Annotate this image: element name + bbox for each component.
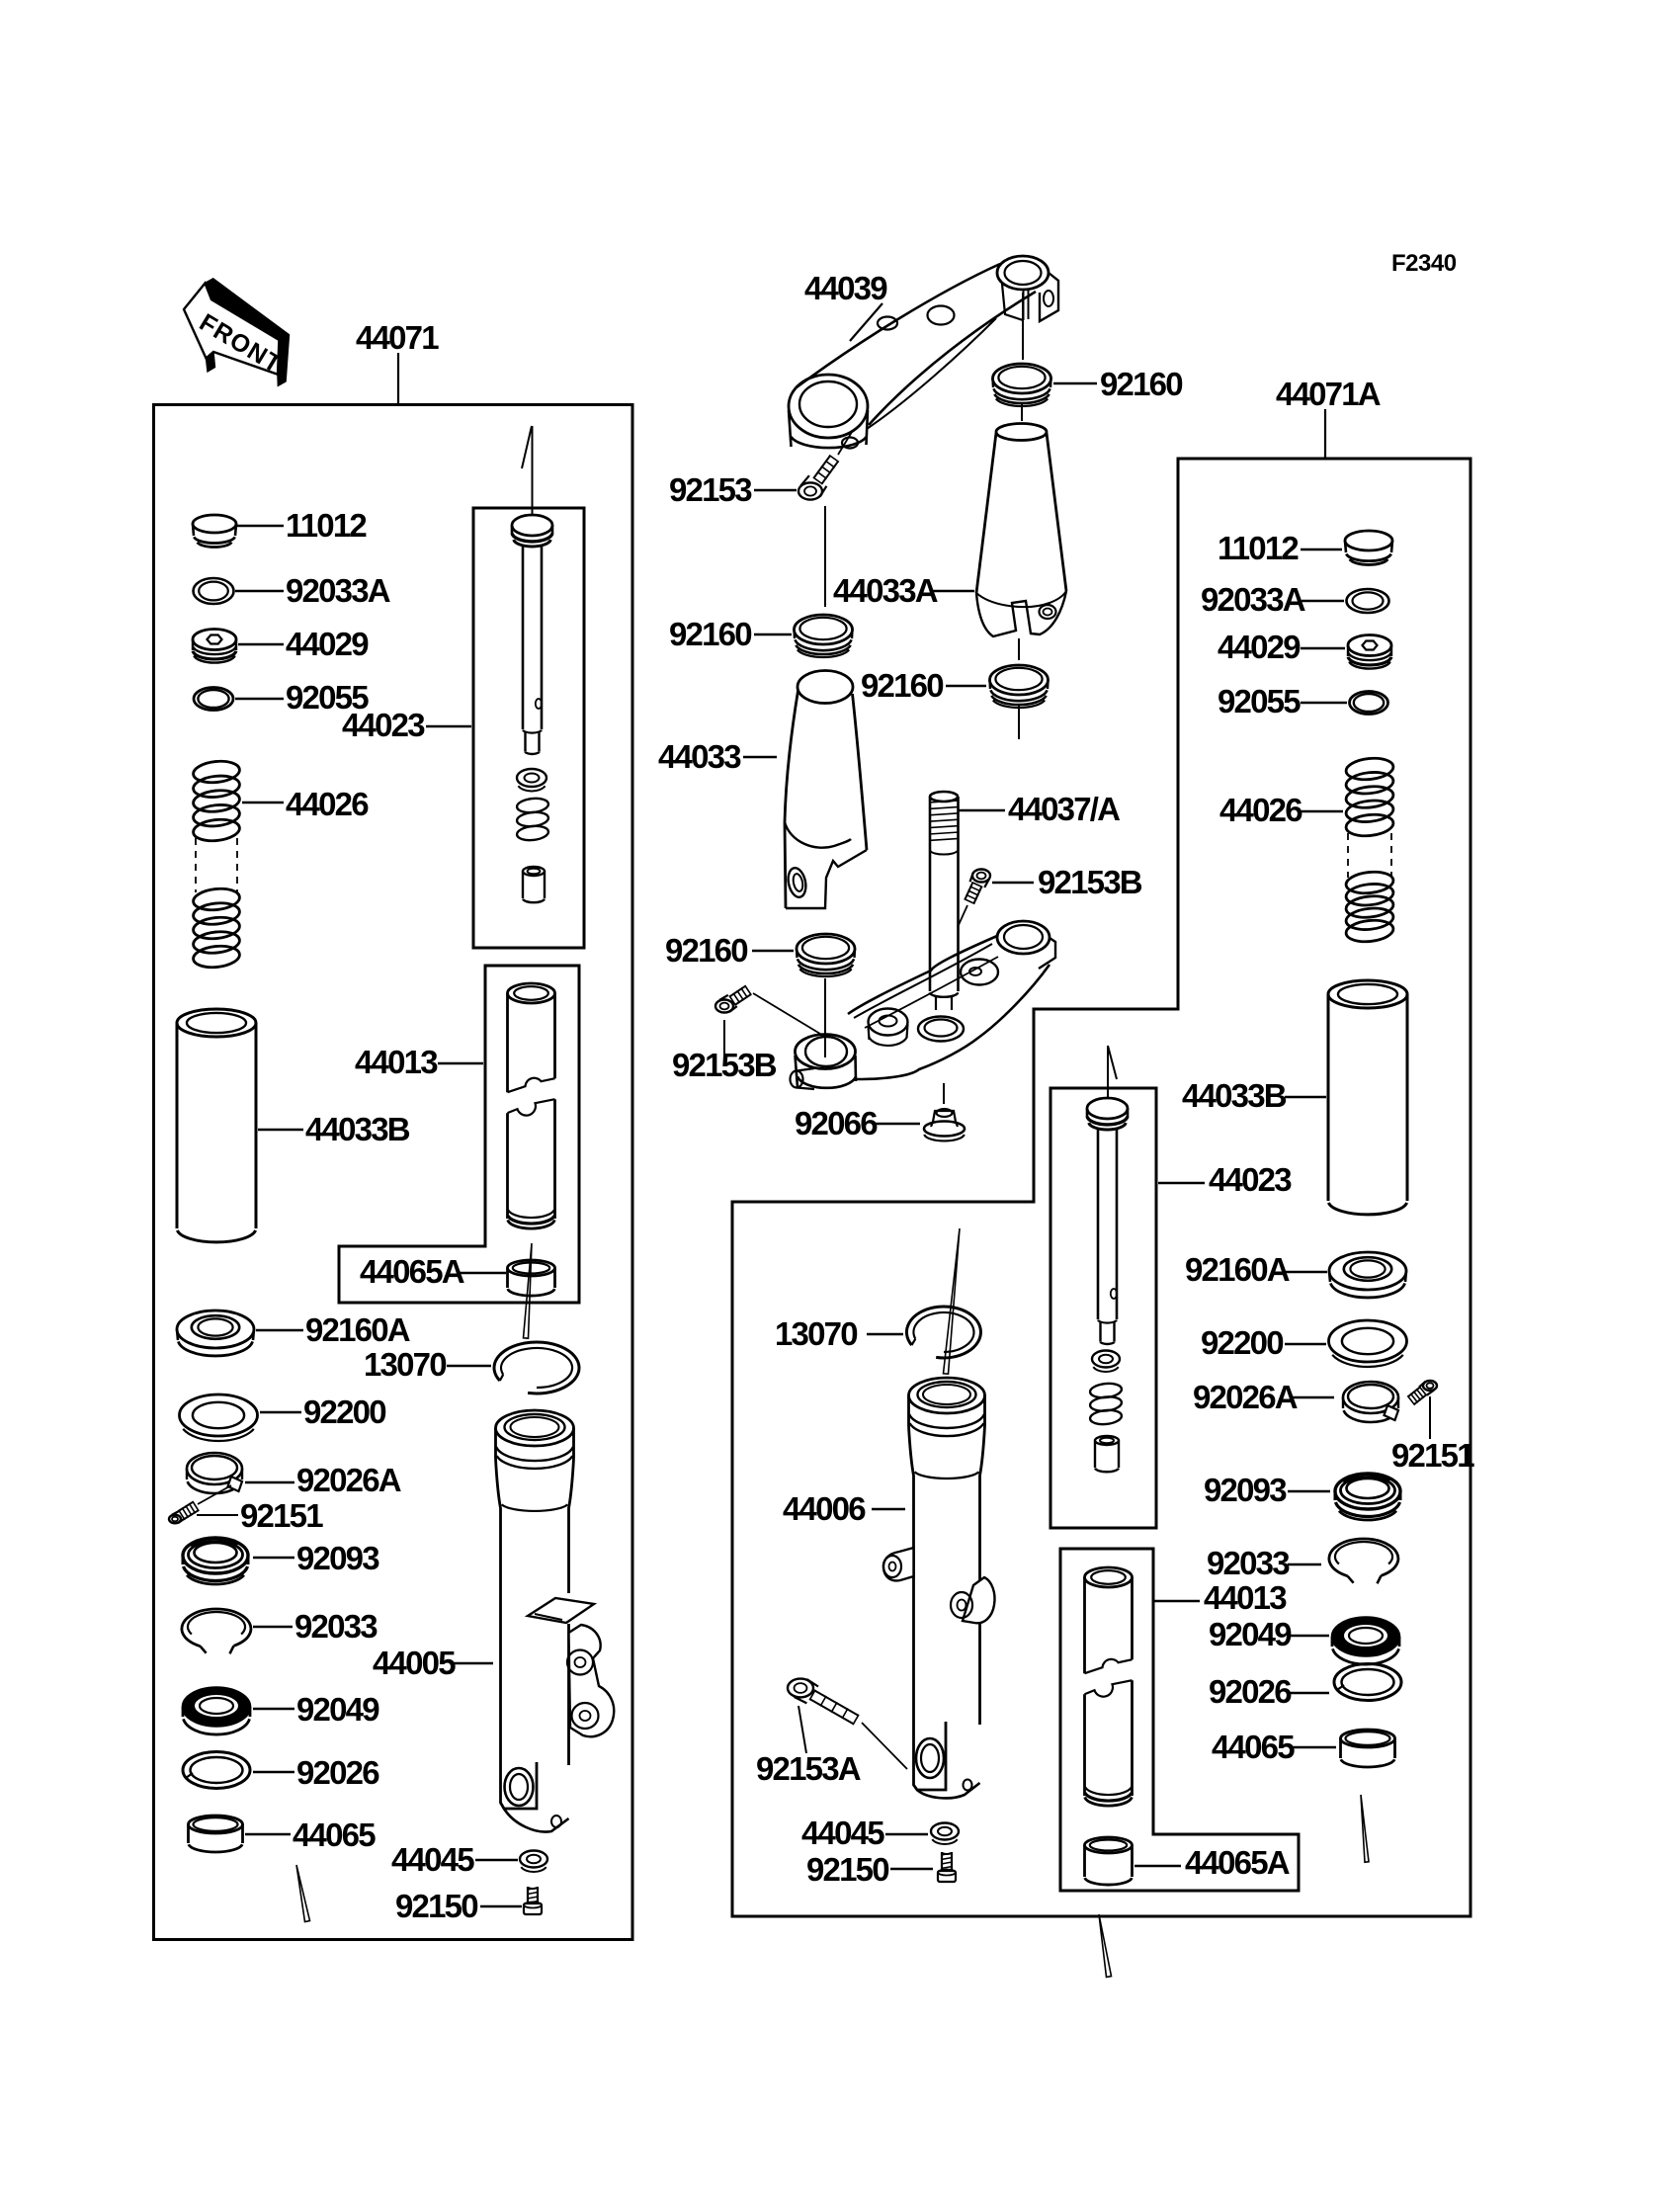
svg-text:92055: 92055: [1218, 683, 1301, 719]
svg-text:44033B: 44033B: [1182, 1077, 1287, 1114]
svg-text:92093: 92093: [1204, 1472, 1287, 1508]
svg-text:44065A: 44065A: [1185, 1844, 1290, 1881]
svg-text:44029: 44029: [286, 626, 369, 662]
svg-text:44065: 44065: [1212, 1729, 1295, 1765]
svg-text:92200: 92200: [1201, 1324, 1283, 1361]
svg-text:44037/A: 44037/A: [1008, 791, 1120, 827]
svg-text:11012: 11012: [286, 507, 367, 544]
svg-text:92153B: 92153B: [1038, 864, 1142, 900]
svg-text:92026: 92026: [296, 1754, 379, 1791]
svg-text:44033B: 44033B: [305, 1111, 410, 1147]
svg-text:92150: 92150: [806, 1851, 888, 1888]
svg-text:44033A: 44033A: [833, 572, 938, 609]
svg-text:92026A: 92026A: [1193, 1379, 1298, 1415]
svg-text:44023: 44023: [342, 707, 425, 743]
svg-text:92153A: 92153A: [756, 1750, 861, 1787]
svg-text:92160A: 92160A: [305, 1311, 410, 1348]
svg-text:13070: 13070: [364, 1346, 446, 1383]
svg-text:92160A: 92160A: [1185, 1251, 1290, 1288]
svg-text:44026: 44026: [286, 786, 369, 822]
svg-text:92033: 92033: [294, 1608, 378, 1645]
svg-text:44026: 44026: [1219, 792, 1302, 828]
svg-text:92160: 92160: [665, 932, 747, 969]
svg-text:92160: 92160: [861, 667, 943, 704]
svg-text:92049: 92049: [1209, 1616, 1292, 1652]
svg-text:11012: 11012: [1218, 530, 1299, 566]
svg-text:92160: 92160: [1100, 366, 1182, 402]
svg-text:44006: 44006: [783, 1490, 866, 1527]
svg-text:44065: 44065: [293, 1817, 376, 1853]
svg-text:92200: 92200: [303, 1394, 385, 1430]
svg-text:92150: 92150: [395, 1888, 477, 1924]
svg-text:44013: 44013: [355, 1044, 438, 1080]
svg-text:92033: 92033: [1207, 1545, 1290, 1581]
svg-text:44033: 44033: [658, 738, 741, 775]
svg-text:92033A: 92033A: [1201, 581, 1305, 618]
svg-text:F2340: F2340: [1391, 250, 1457, 277]
svg-text:44013: 44013: [1204, 1579, 1287, 1616]
svg-text:44039: 44039: [804, 270, 887, 306]
svg-text:13070: 13070: [775, 1315, 857, 1352]
svg-text:44071A: 44071A: [1276, 376, 1381, 412]
svg-text:92026A: 92026A: [296, 1462, 401, 1498]
svg-text:44029: 44029: [1218, 629, 1301, 665]
svg-text:92153: 92153: [669, 471, 752, 508]
svg-text:44005: 44005: [373, 1645, 456, 1681]
svg-text:44071: 44071: [356, 319, 439, 356]
svg-text:92160: 92160: [669, 616, 751, 652]
svg-text:92151: 92151: [1391, 1437, 1474, 1474]
svg-text:92049: 92049: [296, 1691, 379, 1728]
svg-text:92026: 92026: [1209, 1673, 1292, 1710]
svg-text:44065A: 44065A: [360, 1253, 464, 1290]
svg-text:44023: 44023: [1209, 1161, 1292, 1198]
svg-text:92151: 92151: [240, 1497, 323, 1534]
svg-text:92066: 92066: [795, 1105, 878, 1141]
svg-text:44045: 44045: [801, 1815, 884, 1851]
svg-text:44045: 44045: [391, 1841, 474, 1878]
svg-text:92093: 92093: [296, 1540, 379, 1576]
svg-text:92033A: 92033A: [286, 572, 390, 609]
